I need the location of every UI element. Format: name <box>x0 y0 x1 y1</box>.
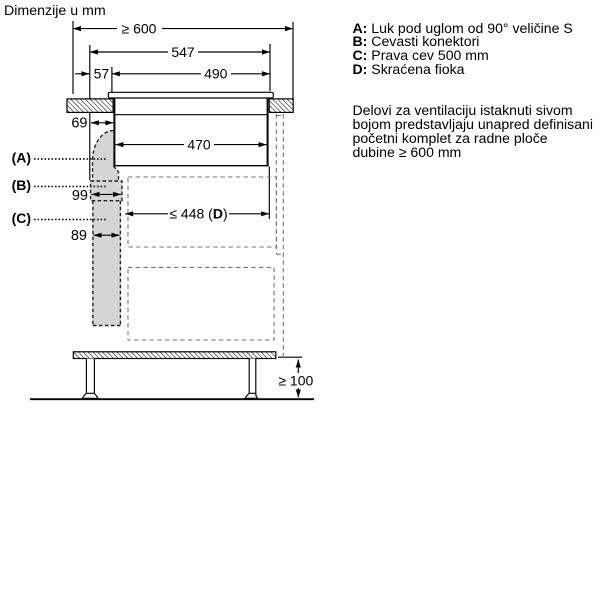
svg-text:57: 57 <box>94 66 110 82</box>
svg-text:547: 547 <box>171 44 195 60</box>
svg-text:≥ 100: ≥ 100 <box>278 372 313 388</box>
svg-text:≥ 600: ≥ 600 <box>122 20 157 36</box>
svg-text:(B): (B) <box>12 177 31 193</box>
svg-text:(A): (A) <box>12 150 31 166</box>
svg-text:89: 89 <box>71 228 87 244</box>
svg-text:69: 69 <box>71 116 87 132</box>
svg-text:99: 99 <box>72 188 88 204</box>
svg-text:≤ 448 (D): ≤ 448 (D) <box>169 206 227 222</box>
svg-text:490: 490 <box>204 66 228 82</box>
svg-text:(C): (C) <box>12 210 31 226</box>
svg-text:470: 470 <box>187 136 211 152</box>
